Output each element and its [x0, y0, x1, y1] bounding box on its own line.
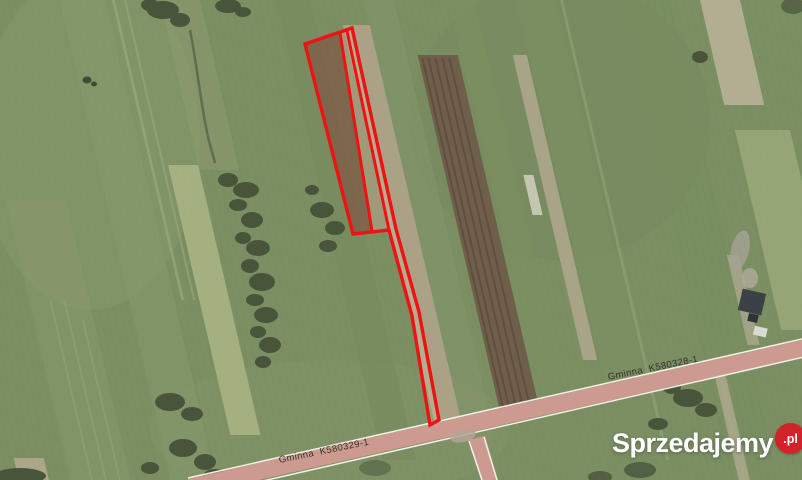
watermark: Sprzedajemy .pl [612, 427, 802, 459]
watermark-brand-text: Sprzedajemy [612, 427, 773, 459]
aerial-map [0, 0, 802, 480]
watermark-pl-badge-icon: .pl [775, 423, 802, 454]
listing-map-image: Gminna K580329-1 Gminna K580328-1 Sprzed… [0, 0, 802, 480]
watermark-tld-text: .pl [783, 432, 798, 446]
